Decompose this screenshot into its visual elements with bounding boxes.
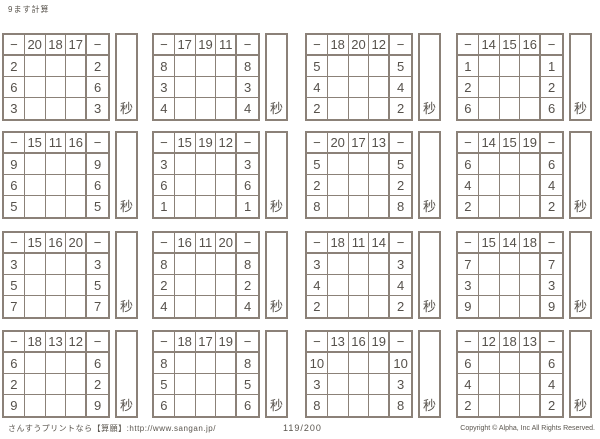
answer-cell <box>175 154 196 175</box>
minuend-cell: 16 <box>46 233 67 254</box>
timer-box: 秒 <box>569 33 592 121</box>
minuend-cell: 20 <box>349 35 370 56</box>
subtrahend-cell: 5 <box>307 154 328 175</box>
operator-cell: − <box>237 233 258 254</box>
minuend-cell: 16 <box>175 233 196 254</box>
subtrahend-repeat-cell: 1 <box>541 56 562 77</box>
subtrahend-repeat-cell: 6 <box>87 77 108 98</box>
answer-cell <box>349 296 370 317</box>
minuend-cell: 20 <box>216 233 237 254</box>
subtrahend-repeat-cell: 4 <box>390 275 411 296</box>
subtrahend-cell: 3 <box>307 254 328 275</box>
answer-cell <box>25 175 46 196</box>
operator-cell: − <box>4 233 25 254</box>
answer-cell <box>349 175 370 196</box>
answer-cell <box>479 154 500 175</box>
subtrahend-cell: 5 <box>4 275 25 296</box>
subtrahend-cell: 3 <box>307 374 328 395</box>
minuend-cell: 20 <box>328 133 349 154</box>
puzzle-block: −121813−664422秒 <box>456 330 594 418</box>
subtrahend-repeat-cell: 8 <box>390 196 411 217</box>
minuend-cell: 11 <box>196 233 217 254</box>
answer-cell <box>216 395 237 416</box>
subtrahend-repeat-cell: 4 <box>541 175 562 196</box>
timer-box: 秒 <box>265 131 288 219</box>
subtrahend-cell: 1 <box>154 196 175 217</box>
puzzle-block: −171911−883344秒 <box>152 33 290 121</box>
minuend-cell: 15 <box>479 233 500 254</box>
answer-cell <box>369 296 390 317</box>
answer-cell <box>216 374 237 395</box>
operator-cell: − <box>154 133 175 154</box>
subtrahend-cell: 10 <box>307 353 328 374</box>
puzzle-block: −141516−112266秒 <box>456 33 594 121</box>
answer-cell <box>175 275 196 296</box>
answer-cell <box>25 154 46 175</box>
answer-cell <box>196 374 217 395</box>
minuend-cell: 17 <box>349 133 370 154</box>
answer-cell <box>479 98 500 119</box>
puzzle-grid: −141519−664422 <box>456 131 564 219</box>
timer-seconds-label: 秒 <box>270 296 283 317</box>
answer-cell <box>328 77 349 98</box>
subtrahend-repeat-cell: 6 <box>237 175 258 196</box>
puzzle-grid: −201713−552288 <box>305 131 413 219</box>
answer-cell <box>369 275 390 296</box>
answer-cell <box>369 154 390 175</box>
answer-cell <box>196 296 217 317</box>
minuend-cell: 13 <box>328 332 349 353</box>
answer-cell <box>46 353 67 374</box>
answer-cell <box>216 296 237 317</box>
subtrahend-cell: 2 <box>4 56 25 77</box>
answer-cell <box>349 196 370 217</box>
answer-cell <box>520 154 541 175</box>
minuend-cell: 13 <box>369 133 390 154</box>
answer-cell <box>500 296 521 317</box>
puzzle-block: −181114−334422秒 <box>305 231 443 319</box>
minuend-cell: 17 <box>66 35 87 56</box>
answer-cell <box>46 77 67 98</box>
puzzle-grid: −151620−335577 <box>2 231 110 319</box>
subtrahend-repeat-cell: 4 <box>541 374 562 395</box>
operator-cell: − <box>390 332 411 353</box>
answer-cell <box>500 275 521 296</box>
puzzle-grid: −131619−10103388 <box>305 330 413 418</box>
worksheet-page: 9ます計算 −201817−226633秒−171911−883344秒−182… <box>0 0 600 439</box>
answer-cell <box>25 353 46 374</box>
answer-cell <box>196 175 217 196</box>
subtrahend-repeat-cell: 6 <box>87 353 108 374</box>
minuend-cell: 19 <box>196 133 217 154</box>
puzzle-grid: −121813−664422 <box>456 330 564 418</box>
minuend-cell: 18 <box>520 233 541 254</box>
timer-box: 秒 <box>115 330 138 418</box>
answer-cell <box>66 56 87 77</box>
subtrahend-repeat-cell: 3 <box>390 374 411 395</box>
subtrahend-repeat-cell: 4 <box>390 77 411 98</box>
answer-cell <box>175 353 196 374</box>
answer-cell <box>500 395 521 416</box>
answer-cell <box>66 196 87 217</box>
subtrahend-cell: 1 <box>458 56 479 77</box>
subtrahend-repeat-cell: 3 <box>390 254 411 275</box>
subtrahend-repeat-cell: 5 <box>390 56 411 77</box>
minuend-cell: 12 <box>66 332 87 353</box>
minuend-cell: 19 <box>196 35 217 56</box>
subtrahend-repeat-cell: 9 <box>87 154 108 175</box>
minuend-cell: 19 <box>369 332 390 353</box>
subtrahend-cell: 2 <box>307 296 328 317</box>
footer-site-link: さんすうプリントなら【算願】:http://www.sangan.jp/ <box>8 423 216 434</box>
timer-seconds-label: 秒 <box>574 98 587 119</box>
subtrahend-cell: 7 <box>4 296 25 317</box>
subtrahend-repeat-cell: 3 <box>541 275 562 296</box>
answer-cell <box>349 77 370 98</box>
puzzle-block: −201817−226633秒 <box>2 33 140 121</box>
answer-cell <box>328 175 349 196</box>
subtrahend-repeat-cell: 3 <box>237 154 258 175</box>
subtrahend-cell: 6 <box>154 175 175 196</box>
answer-cell <box>349 353 370 374</box>
answer-cell <box>216 254 237 275</box>
minuend-cell: 15 <box>25 233 46 254</box>
answer-cell <box>66 395 87 416</box>
subtrahend-cell: 2 <box>458 395 479 416</box>
operator-cell: − <box>237 35 258 56</box>
operator-cell: − <box>4 35 25 56</box>
subtrahend-repeat-cell: 9 <box>87 395 108 416</box>
operator-cell: − <box>541 332 562 353</box>
timer-seconds-label: 秒 <box>423 395 436 416</box>
minuend-cell: 11 <box>349 233 370 254</box>
answer-cell <box>196 275 217 296</box>
puzzle-grid: −161120−882244 <box>152 231 260 319</box>
subtrahend-repeat-cell: 8 <box>237 353 258 374</box>
subtrahend-repeat-cell: 2 <box>541 77 562 98</box>
answer-cell <box>369 56 390 77</box>
operator-cell: − <box>87 133 108 154</box>
minuend-cell: 16 <box>66 133 87 154</box>
answer-cell <box>46 154 67 175</box>
subtrahend-repeat-cell: 2 <box>87 56 108 77</box>
minuend-cell: 15 <box>500 133 521 154</box>
subtrahend-cell: 6 <box>4 77 25 98</box>
subtrahend-repeat-cell: 8 <box>390 395 411 416</box>
minuend-cell: 13 <box>46 332 67 353</box>
answer-cell <box>479 196 500 217</box>
subtrahend-repeat-cell: 7 <box>541 254 562 275</box>
answer-cell <box>369 254 390 275</box>
answer-cell <box>520 374 541 395</box>
answer-cell <box>25 395 46 416</box>
answer-cell <box>328 196 349 217</box>
answer-cell <box>216 98 237 119</box>
answer-cell <box>175 296 196 317</box>
answer-cell <box>349 275 370 296</box>
answer-cell <box>520 275 541 296</box>
answer-cell <box>349 154 370 175</box>
answer-cell <box>328 56 349 77</box>
answer-cell <box>46 56 67 77</box>
timer-box: 秒 <box>418 131 441 219</box>
puzzle-grid: −182012−554422 <box>305 33 413 121</box>
puzzle-grid: −151418−773399 <box>456 231 564 319</box>
subtrahend-cell: 4 <box>458 374 479 395</box>
operator-cell: − <box>307 133 328 154</box>
minuend-cell: 18 <box>175 332 196 353</box>
minuend-cell: 19 <box>520 133 541 154</box>
answer-cell <box>349 374 370 395</box>
subtrahend-repeat-cell: 2 <box>541 196 562 217</box>
timer-box: 秒 <box>265 231 288 319</box>
minuend-cell: 20 <box>66 233 87 254</box>
puzzle-block: −151418−773399秒 <box>456 231 594 319</box>
answer-cell <box>520 175 541 196</box>
operator-cell: − <box>458 133 479 154</box>
timer-seconds-label: 秒 <box>574 196 587 217</box>
puzzle-block: −181312−662299秒 <box>2 330 140 418</box>
operator-cell: − <box>87 35 108 56</box>
answer-cell <box>349 254 370 275</box>
answer-cell <box>500 254 521 275</box>
minuend-cell: 18 <box>500 332 521 353</box>
minuend-cell: 14 <box>369 233 390 254</box>
answer-cell <box>369 77 390 98</box>
answer-cell <box>328 296 349 317</box>
subtrahend-cell: 6 <box>4 353 25 374</box>
subtrahend-repeat-cell: 10 <box>390 353 411 374</box>
timer-box: 秒 <box>569 330 592 418</box>
subtrahend-cell: 3 <box>154 77 175 98</box>
subtrahend-cell: 2 <box>307 98 328 119</box>
operator-cell: − <box>307 332 328 353</box>
answer-cell <box>175 77 196 98</box>
operator-cell: − <box>541 133 562 154</box>
answer-cell <box>369 98 390 119</box>
operator-cell: − <box>541 35 562 56</box>
puzzle-block: −131619−10103388秒 <box>305 330 443 418</box>
answer-cell <box>25 296 46 317</box>
subtrahend-cell: 8 <box>154 56 175 77</box>
answer-cell <box>216 77 237 98</box>
answer-cell <box>479 56 500 77</box>
minuend-cell: 16 <box>349 332 370 353</box>
operator-cell: − <box>458 233 479 254</box>
subtrahend-repeat-cell: 8 <box>237 56 258 77</box>
subtrahend-cell: 8 <box>307 196 328 217</box>
answer-cell <box>46 395 67 416</box>
subtrahend-repeat-cell: 2 <box>390 296 411 317</box>
operator-cell: − <box>154 35 175 56</box>
minuend-cell: 14 <box>500 233 521 254</box>
puzzle-block: −201713−552288秒 <box>305 131 443 219</box>
answer-cell <box>216 56 237 77</box>
answer-cell <box>196 353 217 374</box>
minuend-cell: 12 <box>369 35 390 56</box>
subtrahend-repeat-cell: 6 <box>237 395 258 416</box>
page-title: 9ます計算 <box>8 4 49 15</box>
subtrahend-cell: 4 <box>154 296 175 317</box>
subtrahend-repeat-cell: 5 <box>87 196 108 217</box>
timer-box: 秒 <box>115 231 138 319</box>
answer-cell <box>349 98 370 119</box>
answer-cell <box>500 56 521 77</box>
subtrahend-repeat-cell: 9 <box>541 296 562 317</box>
answer-cell <box>520 77 541 98</box>
subtrahend-repeat-cell: 4 <box>237 296 258 317</box>
subtrahend-repeat-cell: 2 <box>390 98 411 119</box>
minuend-cell: 15 <box>500 35 521 56</box>
answer-cell <box>175 254 196 275</box>
minuend-cell: 12 <box>479 332 500 353</box>
answer-cell <box>175 98 196 119</box>
answer-cell <box>328 395 349 416</box>
puzzle-block: −161120−882244秒 <box>152 231 290 319</box>
timer-seconds-label: 秒 <box>270 395 283 416</box>
answer-cell <box>520 395 541 416</box>
minuend-cell: 12 <box>216 133 237 154</box>
puzzle-grid: −141516−112266 <box>456 33 564 121</box>
subtrahend-repeat-cell: 6 <box>87 175 108 196</box>
operator-cell: − <box>4 332 25 353</box>
puzzle-grid: −201817−226633 <box>2 33 110 121</box>
operator-cell: − <box>154 332 175 353</box>
minuend-cell: 18 <box>46 35 67 56</box>
answer-cell <box>216 353 237 374</box>
puzzle-block: −151116−996655秒 <box>2 131 140 219</box>
answer-cell <box>66 353 87 374</box>
subtrahend-cell: 3 <box>4 254 25 275</box>
puzzle-block: −151912−336611秒 <box>152 131 290 219</box>
minuend-cell: 13 <box>520 332 541 353</box>
answer-cell <box>66 98 87 119</box>
answer-cell <box>25 196 46 217</box>
timer-box: 秒 <box>265 330 288 418</box>
answer-cell <box>328 374 349 395</box>
timer-seconds-label: 秒 <box>270 196 283 217</box>
subtrahend-repeat-cell: 4 <box>237 98 258 119</box>
subtrahend-cell: 9 <box>458 296 479 317</box>
subtrahend-repeat-cell: 6 <box>541 98 562 119</box>
answer-cell <box>196 254 217 275</box>
subtrahend-cell: 6 <box>458 98 479 119</box>
answer-cell <box>328 353 349 374</box>
answer-cell <box>500 154 521 175</box>
timer-box: 秒 <box>115 33 138 121</box>
timer-seconds-label: 秒 <box>423 296 436 317</box>
minuend-cell: 18 <box>328 35 349 56</box>
subtrahend-cell: 2 <box>4 374 25 395</box>
answer-cell <box>369 175 390 196</box>
answer-cell <box>25 98 46 119</box>
answer-cell <box>196 56 217 77</box>
subtrahend-cell: 9 <box>4 154 25 175</box>
subtrahend-cell: 2 <box>458 77 479 98</box>
timer-seconds-label: 秒 <box>574 296 587 317</box>
minuend-cell: 17 <box>175 35 196 56</box>
answer-cell <box>520 196 541 217</box>
answer-cell <box>479 353 500 374</box>
puzzle-block: −181719−885566秒 <box>152 330 290 418</box>
subtrahend-repeat-cell: 2 <box>87 374 108 395</box>
puzzle-grid: −171911−883344 <box>152 33 260 121</box>
answer-cell <box>66 374 87 395</box>
puzzle-grid: −151116−996655 <box>2 131 110 219</box>
subtrahend-cell: 4 <box>307 77 328 98</box>
subtrahend-repeat-cell: 8 <box>237 254 258 275</box>
operator-cell: − <box>87 332 108 353</box>
answer-cell <box>46 275 67 296</box>
puzzle-grid: −181114−334422 <box>305 231 413 319</box>
timer-box: 秒 <box>418 231 441 319</box>
timer-seconds-label: 秒 <box>423 196 436 217</box>
subtrahend-cell: 4 <box>458 175 479 196</box>
answer-cell <box>175 175 196 196</box>
answer-cell <box>349 395 370 416</box>
answer-cell <box>66 77 87 98</box>
answer-cell <box>196 154 217 175</box>
timer-box: 秒 <box>569 131 592 219</box>
subtrahend-cell: 6 <box>4 175 25 196</box>
answer-cell <box>216 175 237 196</box>
answer-cell <box>500 353 521 374</box>
subtrahend-cell: 8 <box>154 254 175 275</box>
minuend-cell: 14 <box>479 133 500 154</box>
operator-cell: − <box>390 35 411 56</box>
timer-box: 秒 <box>115 131 138 219</box>
subtrahend-cell: 2 <box>154 275 175 296</box>
answer-cell <box>500 175 521 196</box>
minuend-cell: 15 <box>25 133 46 154</box>
footer-copyright: Copyright © Alpha, Inc All Rights Reserv… <box>460 425 595 432</box>
operator-cell: − <box>458 332 479 353</box>
subtrahend-repeat-cell: 6 <box>541 154 562 175</box>
operator-cell: − <box>307 35 328 56</box>
answer-cell <box>520 353 541 374</box>
answer-cell <box>175 196 196 217</box>
timer-box: 秒 <box>418 33 441 121</box>
answer-cell <box>500 374 521 395</box>
puzzle-block: −151620−335577秒 <box>2 231 140 319</box>
answer-cell <box>66 296 87 317</box>
subtrahend-cell: 9 <box>4 395 25 416</box>
puzzle-block: −182012−554422秒 <box>305 33 443 121</box>
operator-cell: − <box>390 233 411 254</box>
subtrahend-repeat-cell: 6 <box>541 353 562 374</box>
minuend-cell: 17 <box>196 332 217 353</box>
puzzle-grid: −181312−662299 <box>2 330 110 418</box>
operator-cell: − <box>4 133 25 154</box>
operator-cell: − <box>237 332 258 353</box>
answer-cell <box>479 275 500 296</box>
timer-seconds-label: 秒 <box>270 98 283 119</box>
answer-cell <box>349 56 370 77</box>
minuend-cell: 19 <box>216 332 237 353</box>
answer-cell <box>46 98 67 119</box>
answer-cell <box>25 56 46 77</box>
subtrahend-cell: 2 <box>458 196 479 217</box>
timer-seconds-label: 秒 <box>120 296 133 317</box>
subtrahend-cell: 6 <box>458 154 479 175</box>
answer-cell <box>520 98 541 119</box>
timer-seconds-label: 秒 <box>423 98 436 119</box>
operator-cell: − <box>458 35 479 56</box>
answer-cell <box>66 275 87 296</box>
answer-cell <box>479 374 500 395</box>
answer-cell <box>369 374 390 395</box>
answer-cell <box>46 196 67 217</box>
